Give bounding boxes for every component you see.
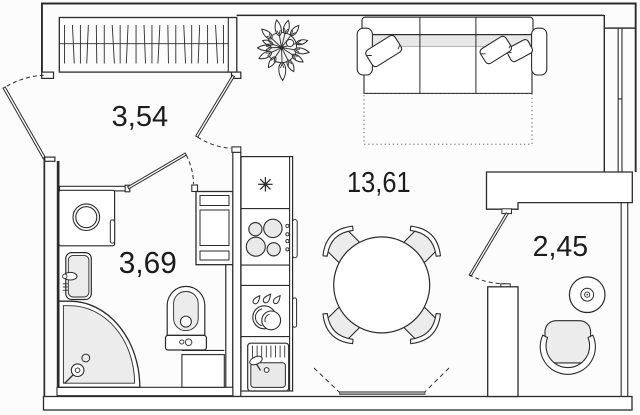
svg-text:2,45: 2,45	[533, 231, 589, 263]
svg-text:3,69: 3,69	[119, 246, 177, 280]
svg-text:3,54: 3,54	[112, 101, 169, 133]
svg-text:13,61: 13,61	[347, 167, 411, 199]
